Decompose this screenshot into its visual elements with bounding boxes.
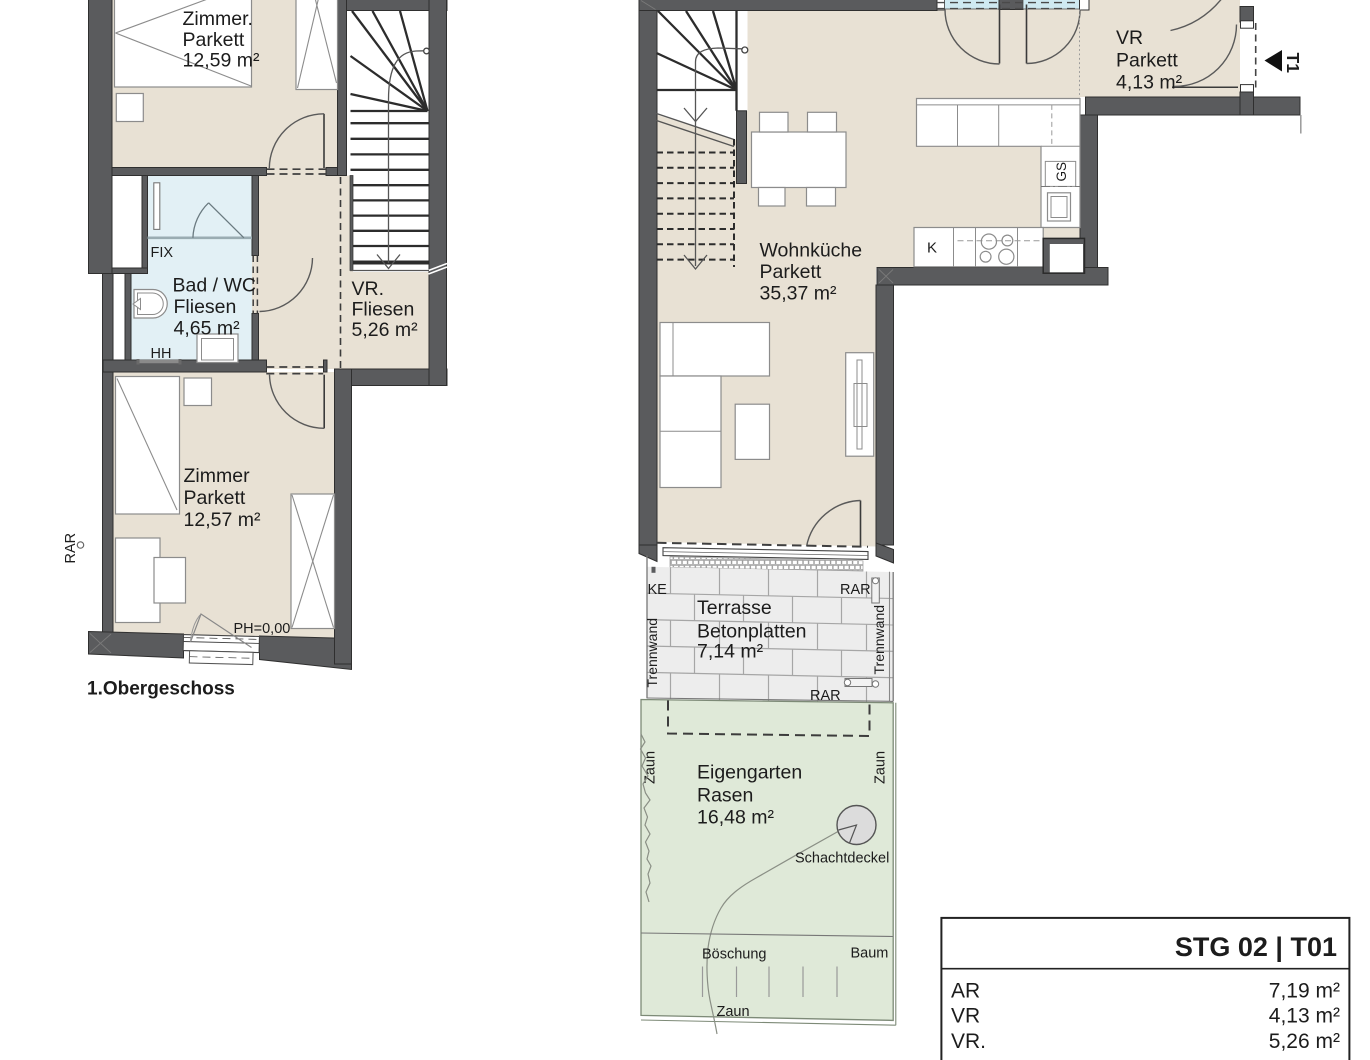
svg-text:Parkett: Parkett: [1116, 50, 1178, 72]
svg-text:Fliesen: Fliesen: [174, 296, 237, 318]
svg-text:4,13 m²: 4,13 m²: [1269, 1005, 1340, 1028]
svg-text:5,26 m²: 5,26 m²: [352, 319, 419, 341]
svg-text:PH=0,00: PH=0,00: [234, 621, 291, 637]
svg-text:Betonplatten: Betonplatten: [697, 621, 807, 643]
svg-text:VR: VR: [1116, 27, 1143, 49]
svg-text:Parkett: Parkett: [760, 261, 822, 283]
svg-text:K: K: [927, 240, 937, 257]
svg-text:Zaun: Zaun: [717, 1004, 750, 1020]
svg-text:7,19 m²: 7,19 m²: [1269, 979, 1340, 1002]
svg-text:Zaun: Zaun: [873, 751, 889, 784]
svg-text:Fliesen: Fliesen: [352, 299, 415, 321]
svg-text:4,13 m²: 4,13 m²: [1116, 72, 1183, 94]
svg-text:KE: KE: [648, 582, 668, 598]
svg-text:FIX: FIX: [151, 245, 174, 261]
svg-text:Bad / WC: Bad / WC: [173, 275, 256, 297]
svg-text:Schachtdeckel: Schachtdeckel: [795, 851, 889, 867]
svg-text:16,48 m²: 16,48 m²: [697, 807, 774, 829]
svg-text:35,37 m²: 35,37 m²: [760, 283, 837, 305]
svg-text:Baum: Baum: [851, 946, 889, 962]
svg-text:Terrasse: Terrasse: [697, 597, 772, 619]
svg-text:VR.: VR.: [951, 1030, 986, 1053]
svg-text:12,59 m²: 12,59 m²: [183, 49, 260, 71]
svg-text:12,57 m²: 12,57 m²: [184, 509, 261, 531]
svg-text:STG 02 | T01: STG 02 | T01: [1175, 932, 1337, 962]
svg-text:5,26 m²: 5,26 m²: [1269, 1030, 1340, 1053]
svg-text:Zimmer.: Zimmer.: [183, 8, 253, 30]
svg-text:Parkett: Parkett: [183, 29, 245, 51]
svg-text:T1: T1: [1283, 53, 1303, 74]
svg-text:Böschung: Böschung: [702, 947, 767, 963]
svg-text:GS: GS: [1054, 162, 1069, 182]
svg-text:VR: VR: [951, 1005, 980, 1028]
svg-text:Wohnküche: Wohnküche: [760, 240, 863, 262]
svg-text:7,14 m²: 7,14 m²: [697, 641, 764, 663]
svg-text:4,65 m²: 4,65 m²: [174, 318, 241, 340]
svg-text:Eigengarten: Eigengarten: [697, 762, 802, 784]
svg-text:AR: AR: [951, 979, 980, 1002]
svg-text:Zimmer: Zimmer: [184, 465, 251, 487]
svg-text:RAR: RAR: [63, 533, 79, 564]
svg-text:1.Obergeschoss: 1.Obergeschoss: [87, 679, 235, 700]
svg-text:VR.: VR.: [352, 278, 385, 300]
svg-text:Rasen: Rasen: [697, 785, 753, 807]
svg-text:RAR: RAR: [840, 582, 871, 598]
svg-text:Trennwand: Trennwand: [644, 618, 660, 688]
svg-text:Parkett: Parkett: [184, 487, 246, 509]
svg-text:HH: HH: [151, 346, 172, 362]
svg-text:Trennwand: Trennwand: [871, 605, 887, 675]
